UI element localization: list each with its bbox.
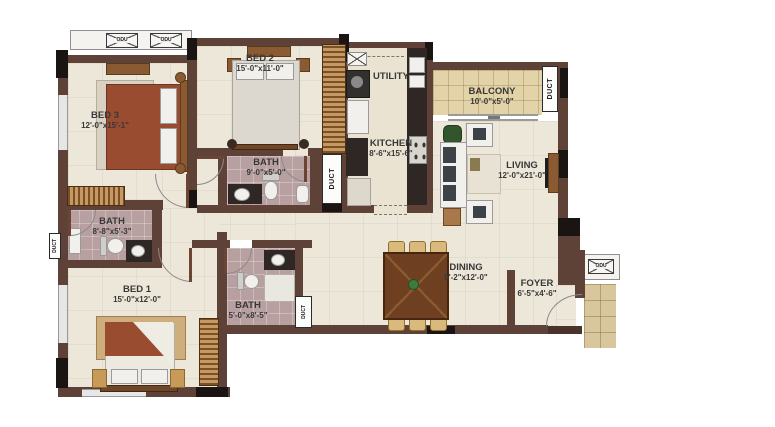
odu-box-1-label: ODU xyxy=(115,38,128,43)
column-top-left xyxy=(56,50,68,78)
wall-bed3-top xyxy=(58,55,187,63)
kitchen-open-line xyxy=(374,205,407,215)
bed2-door-leaf xyxy=(197,156,224,159)
bath2-toilet-bowl xyxy=(264,181,278,200)
wall-foyer-stub xyxy=(507,270,515,333)
bed3-pillow-2 xyxy=(160,128,177,164)
bed1-table-left xyxy=(92,369,107,388)
bath2-door-leaf xyxy=(304,156,307,182)
odu-box-entry: ODU xyxy=(588,259,614,274)
bed2-post-left xyxy=(227,139,237,149)
bed3-console xyxy=(106,63,150,75)
odu-box-entry-label: ODU xyxy=(594,264,607,269)
utility-sink-2 xyxy=(409,75,425,88)
bed2-footboard xyxy=(232,144,298,150)
bed2-console xyxy=(247,46,291,57)
duct-left-wall: DUCT xyxy=(49,233,61,259)
bed3-headboard xyxy=(180,80,188,172)
duct-balcony-label: DUCT xyxy=(547,78,554,99)
bed1-table-right xyxy=(170,369,185,388)
utility-washer-drum xyxy=(351,76,363,88)
sliding-door-handle xyxy=(488,116,500,119)
column-right-foyer xyxy=(558,218,580,236)
window-bed1-left xyxy=(58,285,68,343)
living-armchair-top-cushion xyxy=(473,128,486,140)
bath2-sink xyxy=(234,188,250,201)
duct-kitchen: DUCT xyxy=(322,154,342,204)
bed3-post-top xyxy=(175,72,186,83)
column-duct-a xyxy=(322,203,342,212)
column-bed1-bottom xyxy=(196,387,228,397)
wall-bath1-top-right xyxy=(252,240,312,248)
balcony-floor xyxy=(433,70,542,115)
bath3-toilet-bowl xyxy=(107,238,124,254)
bed3-door-leaf xyxy=(186,174,189,208)
bed1-headboard xyxy=(100,385,178,392)
utility-duct-box xyxy=(347,52,367,66)
utility-appliance xyxy=(347,100,369,134)
duct-balcony: DUCT xyxy=(542,66,558,112)
kitchen-counter-left xyxy=(346,138,368,176)
entry-lobby-tiles xyxy=(584,284,616,348)
living-sofa-cushion-2 xyxy=(443,166,456,182)
column-bed2-left xyxy=(187,38,197,60)
bed1-pillow-1 xyxy=(111,369,138,384)
duct-kitchen-label: DUCT xyxy=(329,168,336,189)
wall-bed1-top-stub xyxy=(192,240,230,248)
living-armchair-bottom-cushion xyxy=(473,206,486,218)
odu-box-2: ODU xyxy=(150,33,182,48)
bed1-wardrobe xyxy=(199,318,219,386)
bath3-toilet-tank xyxy=(100,236,107,256)
duct-bath1-label: DUCT xyxy=(301,305,307,319)
bath3-door-leaf xyxy=(68,210,71,236)
bath3-sink xyxy=(131,245,145,257)
bath1-toilet-bowl xyxy=(244,274,259,289)
floor-plan: DUCT DUCT DUCT DUCT ODU ODU ODU xyxy=(0,0,775,427)
main-door-leaf xyxy=(548,326,582,334)
bed2-pillow-2 xyxy=(266,63,294,80)
wall-bottom-main xyxy=(217,325,548,334)
bed3-pillow-1 xyxy=(160,88,177,124)
living-tv xyxy=(545,158,548,188)
bed3-post-bottom xyxy=(175,163,186,174)
bed1-pillow-2 xyxy=(141,369,168,384)
bed2-wardrobe xyxy=(322,44,346,154)
bath2-basin xyxy=(296,185,309,203)
duct-bath1: DUCT xyxy=(295,296,312,328)
living-coffee-table xyxy=(470,158,480,171)
bath1-shower-tray xyxy=(264,274,295,302)
living-sofa-cushion-1 xyxy=(443,147,456,163)
living-tv-console xyxy=(548,153,559,193)
bath2-toilet-tank xyxy=(262,173,280,181)
dining-table-centerpiece xyxy=(408,279,419,290)
bath1-toilet-tank xyxy=(237,272,244,290)
wall-bath2-right xyxy=(310,156,322,205)
odu-box-2-label: ODU xyxy=(159,38,172,43)
wall-foyer-right xyxy=(575,250,585,298)
utility-sink-1 xyxy=(409,57,425,73)
column-right-living xyxy=(558,150,568,178)
bed2-post-right xyxy=(299,139,309,149)
bed1-door-leaf xyxy=(189,248,192,282)
column-bottom-left xyxy=(56,358,68,388)
living-side-table xyxy=(443,208,461,226)
kitchen-cabinet-left xyxy=(347,178,371,206)
bath1-sink xyxy=(271,254,285,266)
odu-box-1: ODU xyxy=(106,33,138,48)
living-sofa-cushion-3 xyxy=(443,185,456,201)
window-bed3-left xyxy=(58,95,68,150)
bed3-wardrobe xyxy=(67,186,125,206)
bath1-door-leaf xyxy=(224,248,227,274)
duct-left-wall-label: DUCT xyxy=(52,239,58,253)
bed2-pillow-1 xyxy=(236,63,264,80)
wall-bath1-right xyxy=(295,248,303,296)
column-right-upper xyxy=(560,68,568,98)
kitchen-stove xyxy=(409,136,427,164)
